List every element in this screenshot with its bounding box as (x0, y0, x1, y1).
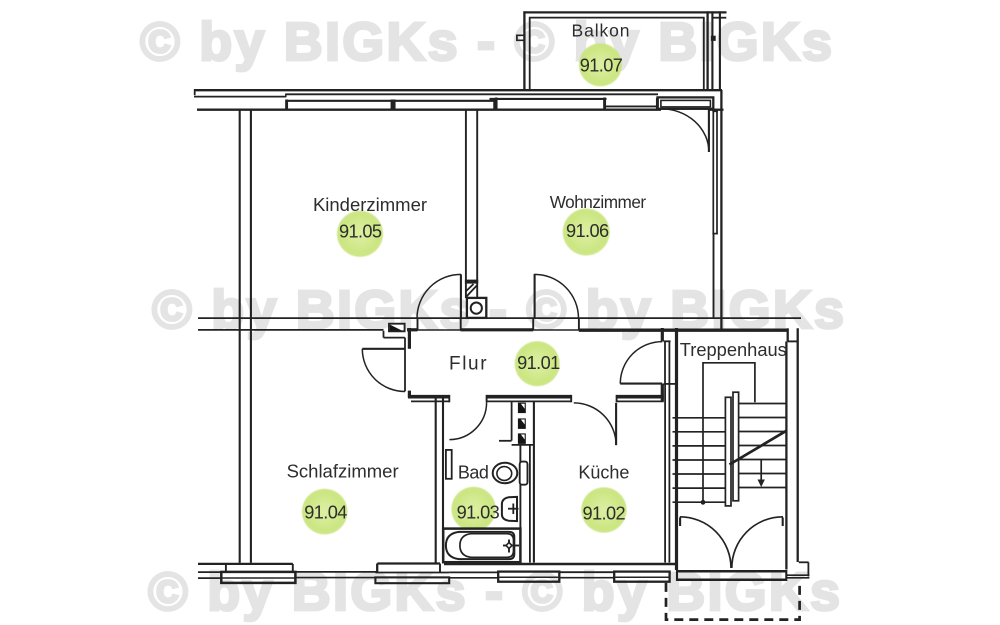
svg-text:91.05: 91.05 (339, 222, 382, 242)
svg-text:Treppenhaus: Treppenhaus (680, 339, 787, 360)
svg-text:91.06: 91.06 (566, 221, 609, 241)
svg-text:Flur: Flur (449, 353, 488, 374)
svg-text:91.03: 91.03 (457, 502, 500, 522)
svg-text:Kinderzimmer: Kinderzimmer (313, 194, 427, 215)
svg-text:91.01: 91.01 (517, 353, 560, 373)
svg-text:Schlafzimmer: Schlafzimmer (287, 461, 399, 482)
svg-text:Wohnzimmer: Wohnzimmer (550, 192, 647, 212)
svg-text:91.02: 91.02 (583, 503, 626, 523)
svg-text:Küche: Küche (578, 462, 629, 482)
svg-text:91.07: 91.07 (580, 56, 623, 76)
svg-text:Balkon: Balkon (572, 21, 631, 41)
svg-text:© by BIGKs - © by BIGKs: © by BIGKs - © by BIGKs (140, 12, 834, 72)
svg-text:Bad: Bad (458, 462, 489, 482)
svg-text:91.04: 91.04 (304, 502, 347, 522)
